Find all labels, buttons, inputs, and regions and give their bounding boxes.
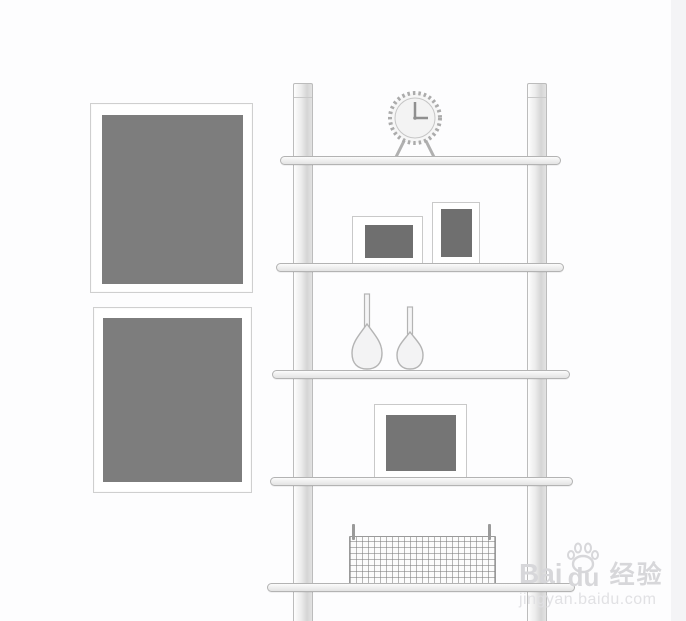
alarm-clock-icon [383, 90, 447, 165]
shelf-board-4 [270, 477, 573, 486]
picture-art [103, 318, 242, 482]
wall-picture-frame-bottom [93, 307, 252, 493]
wall-picture-frame-top [90, 103, 253, 293]
baidu-paw-icon: du [564, 548, 602, 588]
photo-frame-landscape [352, 216, 423, 265]
watermark-brand-prefix: Bai [519, 560, 563, 588]
vases-icon [344, 292, 430, 377]
basket-peg-left [352, 524, 355, 540]
photo-art [386, 415, 456, 471]
baidu-jingyan-watermark: Bai du 经验 jingyan.baidu.com [519, 554, 684, 609]
basket-peg-right [488, 524, 491, 540]
wire-basket [349, 536, 496, 585]
shelf-board-3 [272, 370, 570, 379]
photo-art [441, 209, 472, 257]
right-edge-strip [671, 0, 686, 621]
watermark-brand-cn: 经验 [610, 562, 664, 588]
photo-frame-medium [374, 404, 467, 478]
illustration-canvas: Bai du 经验 jingyan.baidu.com [0, 0, 686, 621]
photo-art [365, 225, 413, 258]
shelf-board-2 [276, 263, 564, 272]
watermark-brand-suffix: du [568, 562, 600, 593]
picture-art [102, 115, 243, 284]
shelf-board-1 [280, 156, 561, 165]
photo-frame-portrait [432, 202, 480, 265]
watermark-url: jingyan.baidu.com [519, 591, 684, 609]
watermark-logo: Bai du 经验 [519, 554, 684, 588]
